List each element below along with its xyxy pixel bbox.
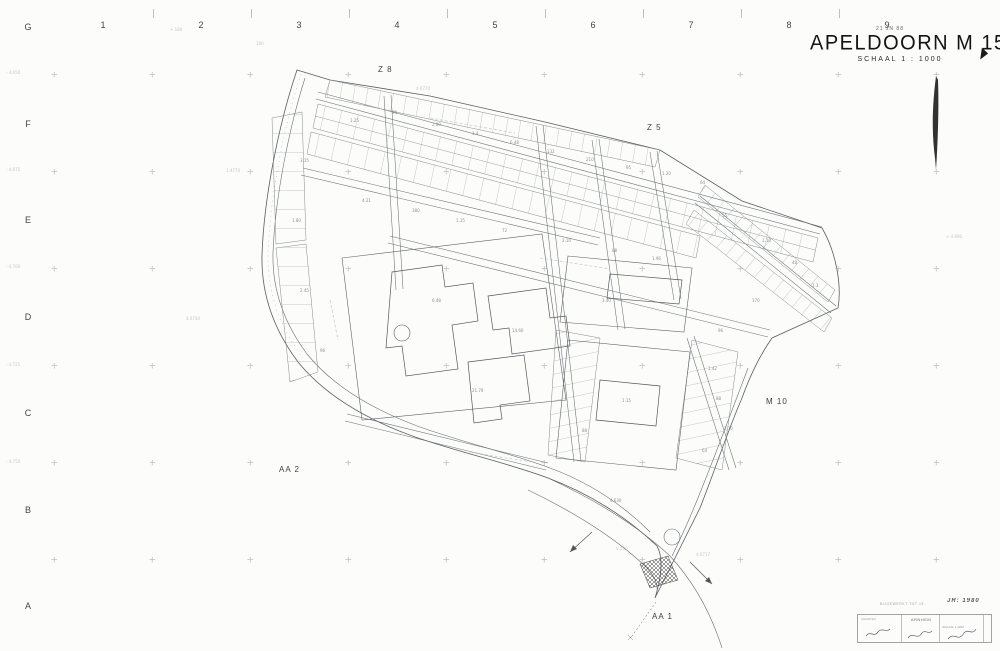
parcel-number-label: 1.20 (662, 171, 671, 176)
parcel-number-label: 55 (722, 213, 727, 218)
grid-cross-icon: + (933, 69, 940, 80)
map-scale: SCHAAL 1 : 1000 (810, 56, 990, 63)
parcel-number-label: 1.80 (292, 218, 301, 223)
grid-cross-icon: + (345, 69, 352, 80)
grid-cross-icon: + (835, 263, 842, 274)
grid-cross-icon: + (541, 360, 548, 371)
grid-cross-icon: + (737, 166, 744, 177)
grid-cross-icon: + (541, 554, 548, 565)
parcel-number-label: 95 (626, 165, 631, 170)
grid-cross-icon: + (835, 69, 842, 80)
grid-cross-icon: + (149, 360, 156, 371)
grid-cross-icon: + (933, 263, 940, 274)
grid-cross-icon: + (639, 69, 646, 80)
parcel-number-label: 1.15 (622, 398, 631, 403)
stamp-year: JR: 1980 (947, 598, 980, 604)
grid-col-number: 4 (390, 20, 404, 30)
grid-row-letter: G (21, 22, 35, 32)
parcel-number-label: 96 (718, 328, 723, 333)
grid-col-number: 5 (488, 20, 502, 30)
grid-cross-icon: + (835, 554, 842, 565)
parcel-number-label: 2.45 (300, 288, 309, 293)
parcel-number-label: 1.96 (652, 256, 661, 261)
parcel-number-label: 88 (716, 396, 721, 401)
grid-col-number: 7 (684, 20, 698, 30)
parcel-number-label: 2.10 (562, 238, 571, 243)
grid-cross-icon: + (737, 69, 744, 80)
grid-col-number: 9 (880, 20, 894, 30)
parcel-number-label: 2.3 (812, 283, 818, 288)
grid-cross-icon: + (247, 166, 254, 177)
adjacent-sheet-label: AA 1 (652, 612, 673, 621)
grid-row-letter: A (21, 601, 35, 611)
grid-coordinate-label: + 180 (170, 27, 182, 32)
adjacent-sheet-label: AA 2 (279, 465, 300, 474)
parcel-number-label: 3.40 (602, 298, 611, 303)
grid-coordinate-label: - 4.750 (6, 459, 20, 464)
grid-cross-icon: + (247, 554, 254, 565)
grid-coordinate-label: V 530 (616, 546, 628, 551)
parcel-number-label: 2.10 (724, 426, 733, 431)
grid-cross-icon: + (737, 360, 744, 371)
grid-tick-icon (349, 9, 350, 18)
grid-cross-icon: + (345, 554, 352, 565)
grid-tick-icon (643, 9, 644, 18)
parcel-number-label: 88 (582, 428, 587, 433)
grid-cross-icon: + (51, 360, 58, 371)
grid-cross-icon: + (51, 457, 58, 468)
grid-cross-icon: + (149, 166, 156, 177)
adjacent-sheet-label: Z 5 (647, 123, 662, 132)
parcel-number-label: 14.60 (512, 328, 523, 333)
grid-cross-icon: + (639, 554, 646, 565)
grid-cross-icon: + (541, 166, 548, 177)
parcel-number-label: 210 (586, 157, 594, 162)
grid-cross-icon: + (149, 263, 156, 274)
map-title-block: 21 JN 88 APELDOORN M 15 SCHAAL 1 : 1000 (810, 26, 990, 63)
parcel-number-label: 48 (792, 260, 797, 265)
grid-row-letter: B (21, 505, 35, 515)
grid-cross-icon: + (933, 166, 940, 177)
parcel-number-label: 132 (547, 149, 555, 154)
grid-cross-icon: + (247, 360, 254, 371)
parcel-number-label: 6.48 (432, 298, 441, 303)
stamp-signatures (858, 615, 991, 642)
grid-cross-icon: + (443, 554, 450, 565)
grid-tick-icon (153, 9, 154, 18)
grid-coordinate-label: - 4.700 (6, 264, 20, 269)
grid-cross-icon: + (835, 166, 842, 177)
parcel-number-label: 380 (412, 208, 420, 213)
page-title: APELDOORN M 15 (810, 31, 990, 55)
parcel-number-label: 88 (612, 248, 617, 253)
grid-cross-icon: + (149, 457, 156, 468)
grid-coordinate-label: 4.6730 (186, 316, 200, 321)
grid-cross-icon: + (149, 69, 156, 80)
grid-cross-icon: + (443, 69, 450, 80)
grid-cross-icon: + (541, 457, 548, 468)
grid-coordinate-label: + 4.690 (946, 234, 962, 239)
grid-cross-icon: + (933, 360, 940, 371)
grid-col-number: 6 (586, 20, 600, 30)
grid-cross-icon: + (933, 554, 940, 565)
parcel-number-label: 1.10 (762, 238, 771, 243)
grid-cross-icon: + (345, 263, 352, 274)
grid-cross-icon: + (737, 457, 744, 468)
grid-tick-icon (251, 9, 252, 18)
grid-col-number: 1 (96, 20, 110, 30)
parcel-number-label: 21.79 (472, 388, 483, 393)
grid-cross-icon: + (933, 457, 940, 468)
grid-cross-icon: + (51, 166, 58, 177)
grid-cross-icon: + (639, 263, 646, 274)
grid-coordinate-label: - 4.650 (6, 70, 20, 75)
grid-row-letter: D (21, 312, 35, 322)
grid-tick-icon (741, 9, 742, 18)
grid-cross-icon: + (737, 263, 744, 274)
grid-cross-icon: + (541, 263, 548, 274)
grid-row-letter: C (21, 408, 35, 418)
grid-col-number: 2 (194, 20, 208, 30)
grid-cross-icon: + (345, 457, 352, 468)
grid-cross-icon: + (443, 360, 450, 371)
grid-tick-icon (545, 9, 546, 18)
grid-cross-icon: + (247, 69, 254, 80)
grid-cross-icon: + (541, 69, 548, 80)
grid-coordinate-label: 4.6717 (696, 552, 710, 557)
cadastral-map-sheet: 21 JN 88 APELDOORN M 15 SCHAAL 1 : 1000 … (0, 0, 1000, 651)
parcel-number-label: 3.15 (300, 158, 309, 163)
grid-cross-icon: + (835, 457, 842, 468)
grid-coordinate-label: 1.4770 (226, 168, 240, 173)
parcel-number-label: 1.4 (472, 131, 478, 136)
grid-coordinate-label: 180 (256, 41, 264, 46)
grid-cross-icon: + (639, 166, 646, 177)
parcel-number-label: 2.80 (432, 122, 441, 127)
grid-cross-icon: + (443, 263, 450, 274)
grid-cross-icon: + (737, 554, 744, 565)
grid-cross-icon: + (443, 166, 450, 177)
parcel-number-label: 1.15 (456, 218, 465, 223)
parcel-number-label: 4.630 (610, 498, 621, 503)
parcel-number-label: 64 (700, 180, 705, 185)
stamp-table: GEMETEN ARNHEM SCHAAL 1:1000 (857, 614, 992, 643)
grid-cross-icon: + (443, 457, 450, 468)
grid-cross-icon: + (345, 166, 352, 177)
grid-coordinate-label: 4.6770 (416, 86, 430, 91)
parcel-number-label: 170 (752, 298, 760, 303)
grid-cross-icon: + (51, 554, 58, 565)
grid-coordinate-label: - 4.675 (6, 167, 20, 172)
parcel-number-label: 6.48 (510, 140, 519, 145)
grid-cross-icon: + (639, 457, 646, 468)
grid-cross-icon: + (835, 360, 842, 371)
grid-cross-icon: + (247, 263, 254, 274)
parcel-number-label: 90 (392, 110, 397, 115)
grid-cross-icon: + (51, 263, 58, 274)
parcel-number-label: 1.25 (350, 118, 359, 123)
parcel-number-label: 96 (320, 348, 325, 353)
grid-row-letter: F (21, 119, 35, 129)
grid-cross-icon: + (639, 360, 646, 371)
adjacent-sheet-label: Z 8 (378, 65, 393, 74)
grid-tick-icon (447, 9, 448, 18)
adjacent-sheet-label: M 10 (766, 397, 788, 406)
grid-cross-icon: + (345, 360, 352, 371)
grid-tick-icon (839, 9, 840, 18)
grid-cross-icon: + (247, 457, 254, 468)
stamp-note: BIJGEWERKT TOT 19.. (880, 602, 927, 606)
grid-coordinate-label: - 4.725 (6, 362, 20, 367)
parcel-number-label: 4.21 (362, 198, 371, 203)
grid-cross-icon: + (149, 554, 156, 565)
parcel-number-label: 72 (502, 228, 507, 233)
parcel-number-label: 1.42 (708, 366, 717, 371)
grid-col-number: 8 (782, 20, 796, 30)
grid-col-number: 3 (292, 20, 306, 30)
grid-row-letter: E (21, 215, 35, 225)
parcel-number-label: 64 (702, 448, 707, 453)
north-needle (933, 76, 939, 170)
grid-cross-icon: + (51, 69, 58, 80)
